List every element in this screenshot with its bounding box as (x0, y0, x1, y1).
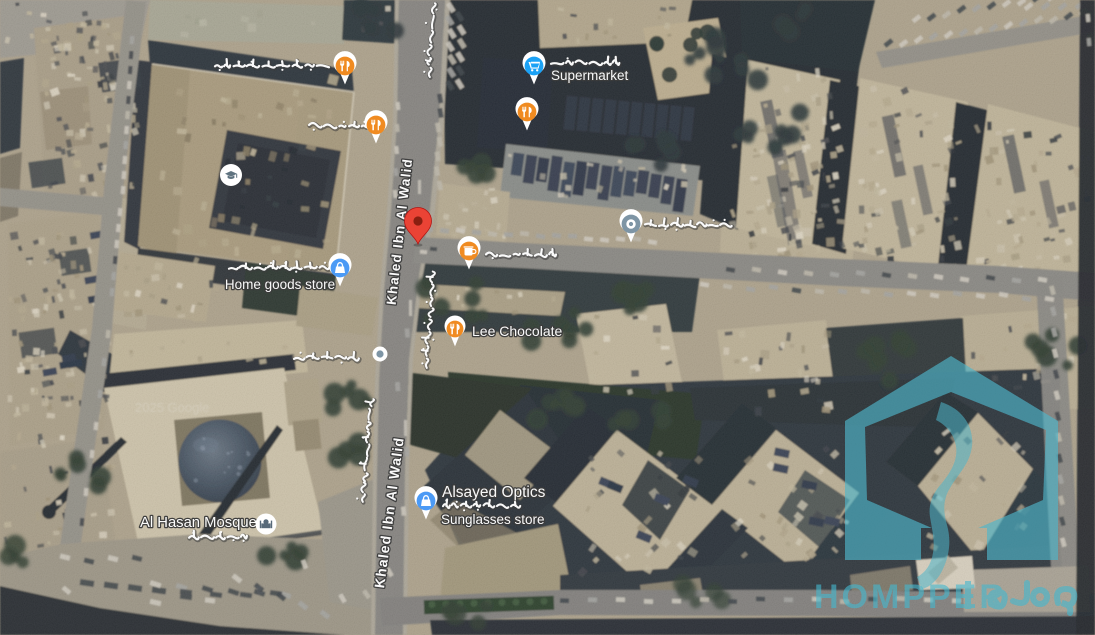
svg-text:Supermarket: Supermarket (551, 68, 629, 83)
svg-text:Lee Chocolate: Lee Chocolate (472, 323, 563, 339)
svg-text:Home goods store: Home goods store (225, 277, 335, 292)
svg-text:Al Hasan Mosque: Al Hasan Mosque (140, 515, 257, 531)
svg-text:HOMPPER: HOMPPER (814, 578, 1007, 616)
svg-text:Alsayed Optics: Alsayed Optics (442, 484, 546, 501)
svg-text:Sunglasses store: Sunglasses store (441, 512, 545, 527)
